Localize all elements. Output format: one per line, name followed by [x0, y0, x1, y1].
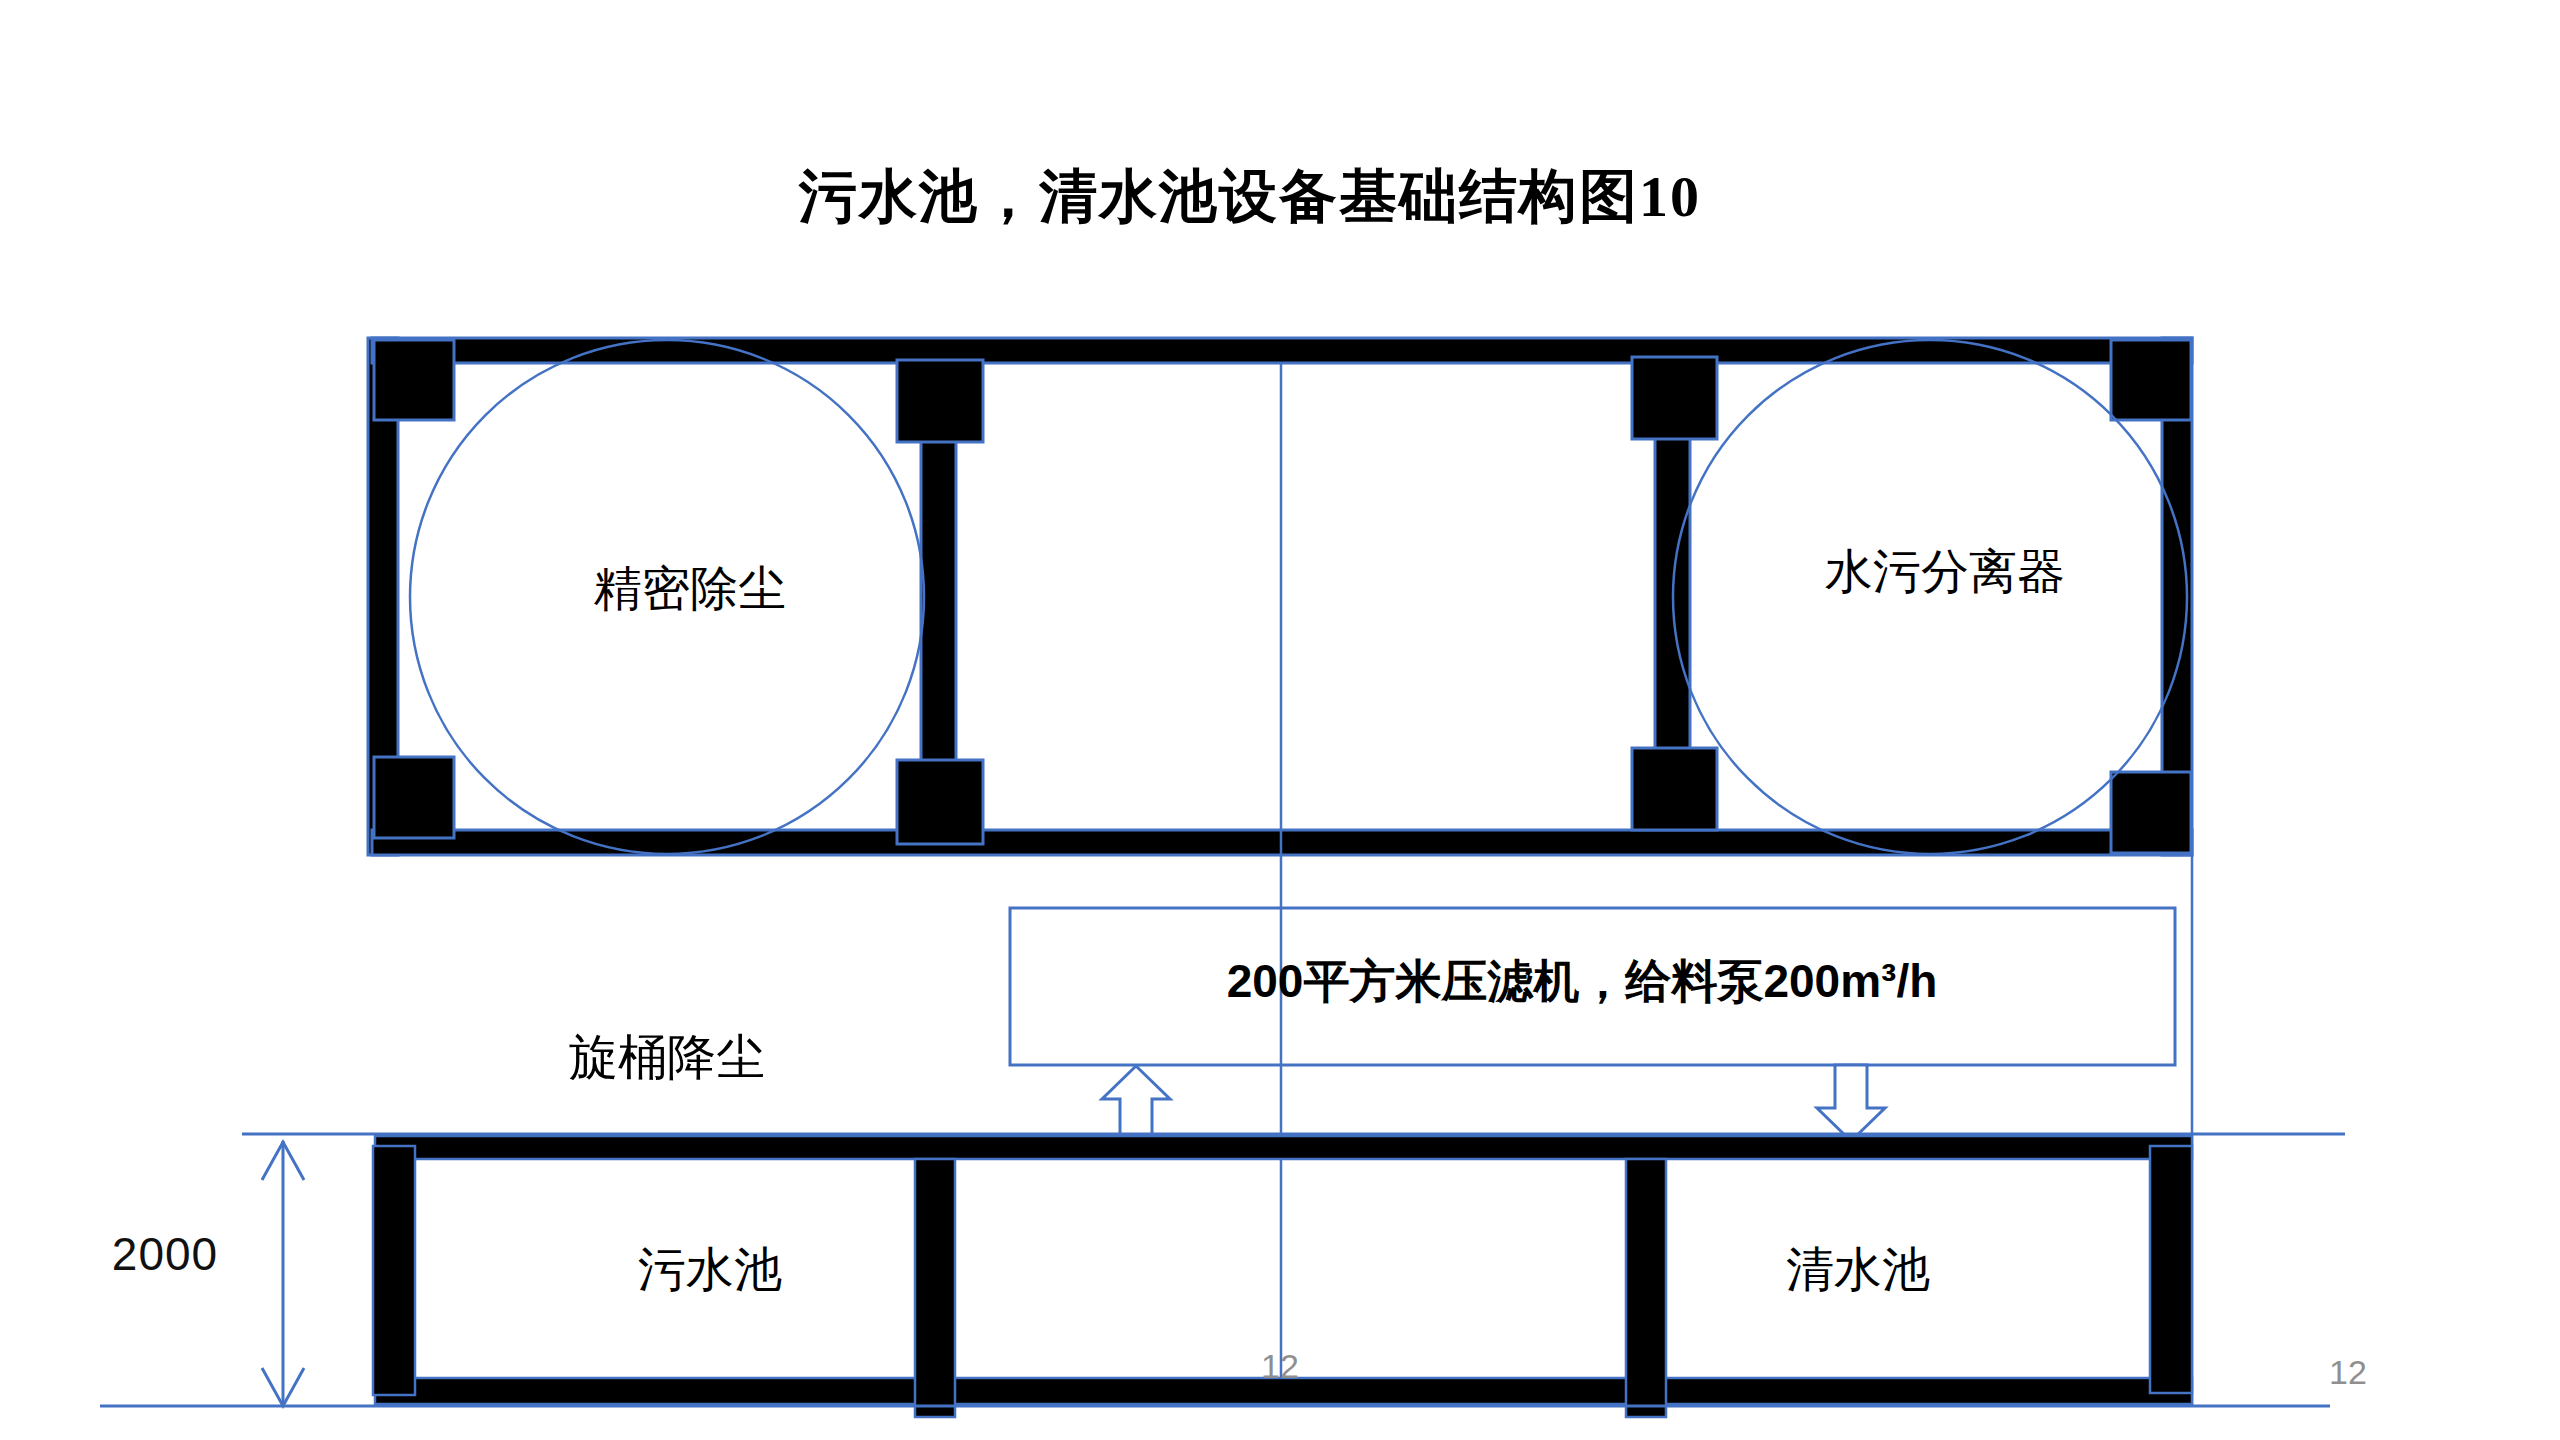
slide: 污水池，清水池设备基础结构图10 精密除尘 水污分离器 200平方米压滤机，给料… — [0, 0, 2560, 1440]
plan-column1-top-pad — [897, 360, 983, 442]
depth-dimension-value: 2000 — [112, 1231, 218, 1277]
plan-column1-bottom-pad — [897, 760, 983, 844]
equipment-note-label: 200平方米压滤机，给料泵200m³/h — [1227, 958, 1938, 1004]
slide-title: 污水池，清水池设备基础结构图10 — [799, 168, 1701, 226]
plan-corner-pad-top-left — [374, 340, 454, 420]
section-left-wall — [373, 1146, 415, 1395]
dust-reduction-label: 旋桶降尘 — [569, 1033, 765, 1082]
clean-water-pool-label: 清水池 — [1786, 1246, 1930, 1294]
right-vessel-label: 水污分离器 — [1825, 548, 2065, 596]
plan-corner-pad-bottom-left — [374, 757, 454, 838]
plan-corner-pad-bottom-right — [2111, 772, 2191, 853]
section-right-wall — [2150, 1146, 2192, 1393]
depth-dimension-arrow — [262, 1141, 304, 1407]
plan-corner-pad-top-right — [2111, 340, 2191, 420]
section-top-slab — [375, 1136, 2192, 1159]
up-arrow-icon — [1102, 1066, 1170, 1141]
left-vessel-label: 精密除尘 — [594, 565, 786, 613]
page-number-center: 12 — [1261, 1349, 1299, 1383]
plan-column2-top-pad — [1632, 357, 1717, 439]
plan-inner-column-1 — [921, 420, 956, 780]
page-number-right: 12 — [2329, 1355, 2367, 1389]
sewage-pool-label: 污水池 — [638, 1246, 782, 1294]
plan-column2-bottom-pad — [1632, 748, 1717, 830]
down-arrow-icon — [1817, 1065, 1885, 1141]
section-inner-wall-2 — [1626, 1159, 1666, 1417]
section-inner-wall-1 — [915, 1159, 955, 1417]
